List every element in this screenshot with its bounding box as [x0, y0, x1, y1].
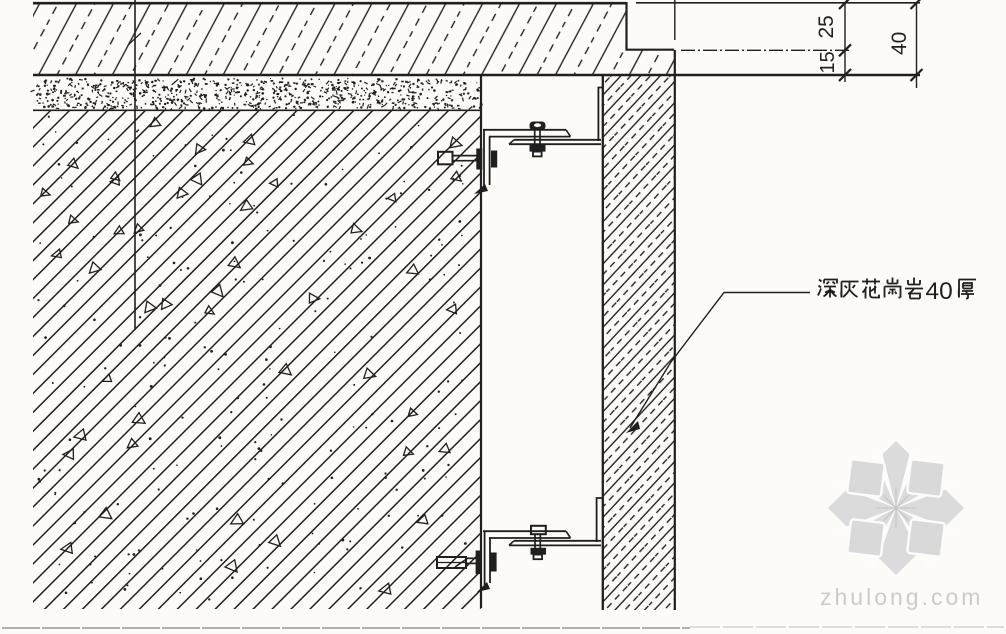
svg-text:15: 15: [817, 51, 839, 73]
svg-text:40: 40: [926, 278, 953, 305]
svg-text:40: 40: [888, 32, 911, 55]
svg-text:zhulong.com: zhulong.com: [820, 584, 983, 610]
svg-text:25: 25: [815, 15, 838, 38]
